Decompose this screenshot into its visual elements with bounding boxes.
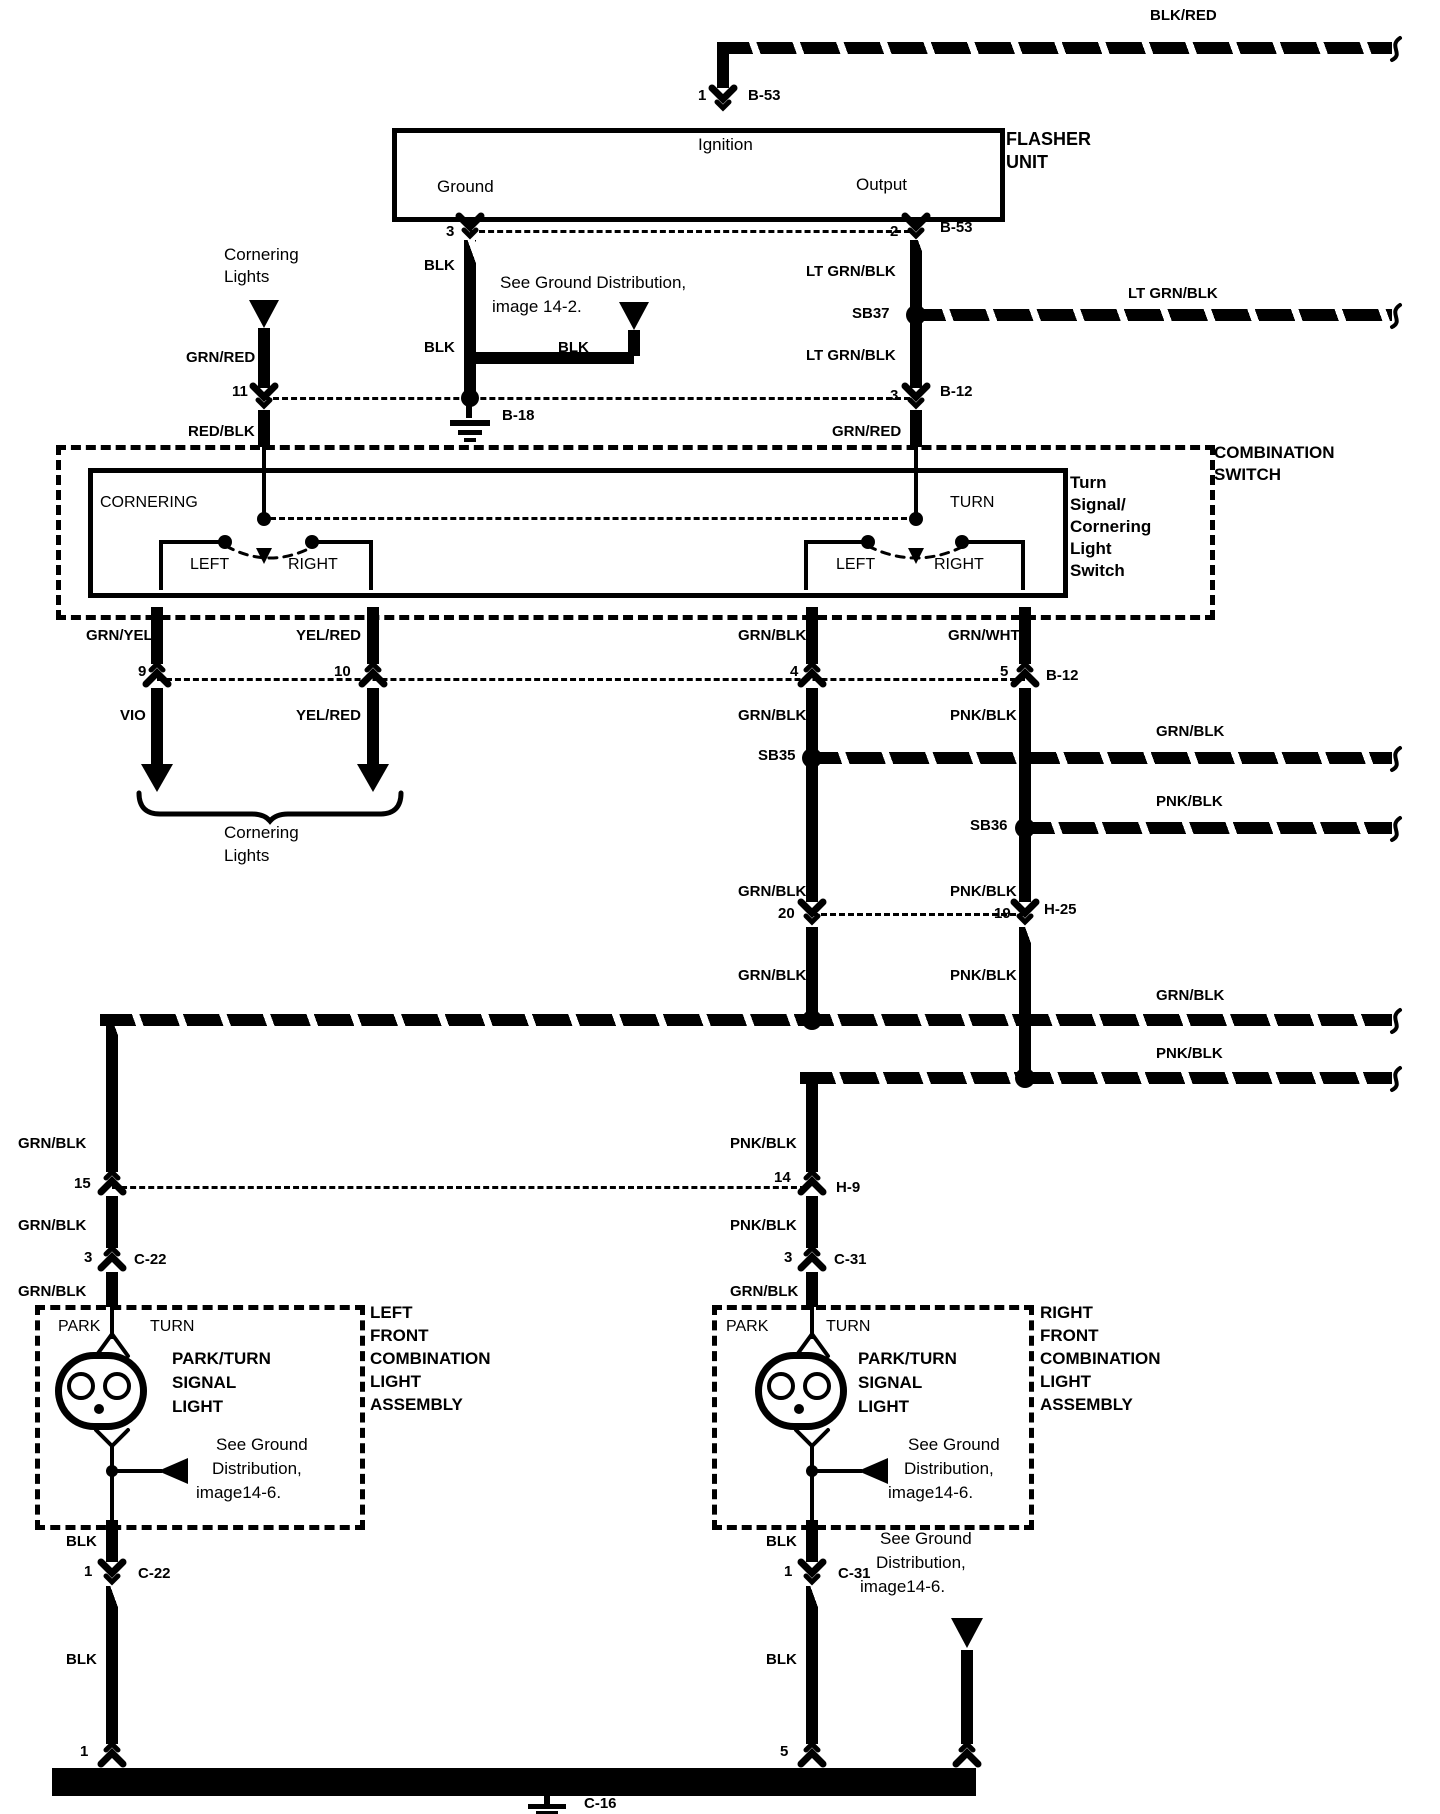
wire-label-pnkblk-6: PNK/BLK (730, 1136, 797, 1153)
cornering-lights-top-2: Lights (224, 268, 269, 287)
right-park-turn-bulb-filament-1 (767, 1372, 795, 1400)
c16-bar-1 (528, 1804, 566, 1809)
right-lamp-ground-dot (806, 1465, 818, 1477)
wire-label-grnblk-6: GRN/BLK (1156, 988, 1224, 1005)
ground-branch-stub (628, 330, 640, 356)
wire-label-grnwht: GRN/WHT (948, 628, 1020, 645)
cut-squiggle-grnblk1 (1388, 744, 1408, 774)
wire-grnwht-pin5-v (1019, 607, 1031, 664)
cut-squiggle-ltgrnblk (1388, 301, 1408, 331)
wire-grnred-right-v (910, 410, 922, 447)
note-ground-dist-4c: image14-6. (860, 1578, 945, 1597)
wire-blk-ground-v (464, 240, 476, 400)
wire-grnblk-long-h (100, 1014, 1392, 1026)
pin-5-bus: 5 (780, 1744, 788, 1761)
left-lamp-ground-dot (106, 1465, 118, 1477)
splice-grnblk (802, 1010, 822, 1030)
ground-bus-bar (52, 1768, 976, 1796)
link-h25-pins (812, 913, 1025, 916)
right-lamp-branch-line (812, 1469, 862, 1473)
left-park-turn-bulb-filament-1 (67, 1372, 95, 1400)
pin-1-bus: 1 (80, 1744, 88, 1761)
wire-pnkblk-right-b (806, 1196, 818, 1248)
cut-squiggle-blkred (1388, 34, 1408, 64)
link-b12-pins-bottom (157, 678, 1025, 681)
wire-label-redblk: RED/BLK (188, 424, 255, 441)
wire-blk-right-a (806, 1520, 818, 1562)
left-bulb-y-top (94, 1332, 130, 1358)
right-park-turn-bulb-filament-2 (803, 1372, 831, 1400)
wire-ltgrnblk-h (910, 309, 1392, 321)
pin-symbol-5-bus (797, 1740, 827, 1768)
wire-label-vio: VIO (120, 708, 146, 725)
wire-grnblk-sb35-h (806, 752, 1392, 764)
splice-sb35 (802, 748, 822, 768)
pin-symbol-19-h25 (1010, 898, 1040, 926)
connector-h25: H-25 (1044, 902, 1077, 919)
flasher-unit-label-2: UNIT (1006, 153, 1048, 173)
right-assembly-label-1: RIGHT (1040, 1304, 1093, 1323)
wire-pnkblk-v-b (1019, 836, 1031, 902)
left-assembly-label-5: ASSEMBLY (370, 1396, 463, 1415)
wire-pnkblk-sb36-h (1019, 822, 1392, 834)
cornering-wiper-arc (222, 540, 318, 574)
cornering-contact-left-line (159, 540, 163, 590)
combination-switch-label-1: COMBINATION (1214, 444, 1335, 463)
right-assembly-label-4: LIGHT (1040, 1373, 1091, 1392)
pin-symbol-4-b12 (797, 660, 827, 688)
wire-pnkblk-right-a (806, 1084, 818, 1172)
wire-grnblk-v-b (806, 766, 818, 902)
combination-switch-label-2: SWITCH (1214, 466, 1281, 485)
cornering-topseg-left (161, 540, 225, 544)
left-assembly-label-2: FRONT (370, 1327, 429, 1346)
left-lamp-ground-line (110, 1446, 114, 1522)
wire-label-grnred-2: GRN/RED (832, 424, 901, 441)
wire-b53-pin1-v (717, 48, 729, 88)
ground-b18-label: B-18 (502, 408, 535, 425)
cornering-lights-brace (136, 790, 404, 824)
link-b12-pins-top (264, 397, 910, 400)
note-ground-dist-1a: See Ground Distribution, (500, 274, 686, 293)
right-bulb-y-bottom (794, 1428, 830, 1448)
turn-topseg-left (806, 540, 868, 544)
wire-label-grnred-1: GRN/RED (186, 350, 255, 367)
link-switch-mechanical (270, 517, 916, 520)
wire-label-grnblk-3: GRN/BLK (1156, 724, 1224, 741)
pin-symbol-14-h9 (797, 1168, 827, 1196)
pin-20: 20 (778, 906, 795, 923)
pin-symbol-5-b12 (1010, 660, 1040, 688)
wire-label-blk-5: BLK (766, 1534, 797, 1551)
left-assembly-label-3: COMBINATION (370, 1350, 491, 1369)
cornering-lights-bottom-1: Cornering (224, 824, 299, 843)
wire-label-blk-7: BLK (766, 1652, 797, 1669)
turn-wiper-arc (864, 540, 968, 574)
right-assembly-label-3: COMBINATION (1040, 1350, 1161, 1369)
splice-sb37-label: SB37 (852, 306, 890, 323)
wire-grnblk-left-b (106, 1196, 118, 1248)
vio-arrowhead (141, 764, 173, 792)
wire-label-pnkblk-2: PNK/BLK (1156, 794, 1223, 811)
wire-grnyel-v (151, 607, 163, 664)
wire-label-grnblk-2: GRN/BLK (738, 708, 806, 725)
turn-contact-right-line (1021, 540, 1025, 590)
splice-pnkblk (1015, 1068, 1035, 1088)
wire-label-grnblk-1: GRN/BLK (738, 628, 806, 645)
pin-symbol-3-flasher (455, 212, 485, 240)
pin-symbol-1-b53 (708, 84, 738, 112)
wire-ground-drop-v (961, 1650, 973, 1744)
wire-blk-left-a (106, 1520, 118, 1562)
wire-label-blk-red: BLK/RED (1150, 8, 1217, 25)
wire-label-pnkblk-5: PNK/BLK (1156, 1046, 1223, 1063)
pin-3-c31: 3 (784, 1250, 792, 1267)
right-assembly-label-5: ASSEMBLY (1040, 1396, 1133, 1415)
left-park-turn-bulb-base-dot (94, 1404, 104, 1414)
connector-b53: B-53 (748, 88, 781, 105)
wire-label-grnyel: GRN/YEL (86, 628, 153, 645)
wire-pnkblk-v-c (1019, 927, 1031, 1080)
wire-label-ltgrnblk-3: LT GRN/BLK (806, 348, 896, 365)
connector-b53-2: B-53 (940, 220, 973, 237)
wire-blkred-h (717, 42, 1392, 54)
wire-label-yelred-2: YEL/RED (296, 708, 361, 725)
wire-label-grnblk-9: GRN/BLK (18, 1284, 86, 1301)
note-ground-dist-4b: Distribution, (876, 1554, 966, 1573)
wire-label-blk-2: BLK (424, 340, 455, 357)
wire-yelred-v (367, 607, 379, 664)
wire-label-yelred-1: YEL/RED (296, 628, 361, 645)
pin-symbol-11-b12 (249, 382, 279, 410)
wire-pnkblk-v-a (1019, 688, 1031, 824)
ground-c16-label: C-16 (584, 1796, 617, 1813)
wire-label-pnkblk-7: PNK/BLK (730, 1218, 797, 1235)
right-lamp-ground-ref-arrow (858, 1458, 888, 1484)
wire-label-pnkblk-1: PNK/BLK (950, 708, 1017, 725)
pin-15: 15 (74, 1176, 91, 1193)
pin-symbol-1-c22 (97, 1558, 127, 1586)
cornering-lights-arrow (249, 300, 279, 328)
connector-b12-2: B-12 (1046, 668, 1079, 685)
pin-1-c31: 1 (784, 1564, 792, 1581)
wire-label-blk-6: BLK (66, 1652, 97, 1669)
wire-grnblk-left-a (106, 1026, 118, 1172)
wiring-diagram: BLK/RED1B-53IgnitionGroundOutputFLASHERU… (0, 0, 1440, 1814)
wire-label-grnblk-10: GRN/BLK (730, 1284, 798, 1301)
left-lamp-branch-line (112, 1469, 162, 1473)
turn-contact-left-line (804, 540, 808, 590)
wire-grnblk-v-c (806, 927, 818, 1022)
left-assembly-label-1: LEFT (370, 1304, 413, 1323)
wire-label-pnkblk-4: PNK/BLK (950, 968, 1017, 985)
pin-symbol-3-b12 (901, 382, 931, 410)
pin-1: 1 (698, 88, 706, 105)
wire-grnblk-left-c (106, 1272, 118, 1307)
pin-symbol-20-h25 (797, 898, 827, 926)
note-ground-dist-1b: image 14-2. (492, 298, 582, 317)
wire-blk-left-b (106, 1586, 118, 1744)
yelred-arrowhead (357, 764, 389, 792)
ground-branch-h (470, 352, 634, 364)
cornering-topseg-right (312, 540, 371, 544)
connector-c22-2: C-22 (138, 1566, 171, 1583)
note-ground-dist-4a: See Ground (880, 1530, 972, 1549)
ground-drop-arrow (951, 1618, 983, 1648)
wire-label-blk-4: BLK (66, 1534, 97, 1551)
left-bulb-y-bottom (94, 1428, 130, 1448)
turn-topseg-right (960, 540, 1023, 544)
turn-cornering-switch-box (88, 468, 1068, 598)
cornering-contact-right-line (369, 540, 373, 590)
pin-symbol-1-c31 (797, 1558, 827, 1586)
pin-symbol-3-c31 (797, 1244, 827, 1272)
wire-vio-v (151, 688, 163, 766)
cornering-lights-bottom-2: Lights (224, 847, 269, 866)
cut-squiggle-grnblk2 (1388, 1006, 1408, 1036)
b18-bar-3 (464, 438, 476, 442)
b18-bar-1 (450, 420, 490, 426)
wire-grnblk-pin4-v (806, 607, 818, 664)
connector-c22-1: C-22 (134, 1252, 167, 1269)
pin-symbol-1-bus (97, 1740, 127, 1768)
splice-sb36 (1015, 818, 1035, 838)
pin-symbol-3-c22 (97, 1244, 127, 1272)
cornering-common-line (262, 447, 266, 521)
connector-b12-1: B-12 (940, 384, 973, 401)
pin-symbol-10-b12 (358, 660, 388, 688)
wire-label-ltgrnblk-1: LT GRN/BLK (806, 264, 896, 281)
flasher-unit-box (392, 128, 1005, 222)
splice-sb36-label: SB36 (970, 818, 1008, 835)
wire-yelred2-v (367, 688, 379, 766)
wire-label-grnblk-7: GRN/BLK (18, 1136, 86, 1153)
wire-label-pnkblk-3: PNK/BLK (950, 884, 1017, 901)
link-h9-pins (112, 1186, 806, 1189)
right-assembly-box (712, 1305, 1034, 1530)
wire-grnblk-right-c (806, 1272, 818, 1307)
pin-3-flasher: 3 (446, 224, 454, 241)
b18-bar-2 (458, 430, 482, 435)
pin-3-c22: 3 (84, 1250, 92, 1267)
flasher-unit-label-1: FLASHER (1006, 130, 1091, 150)
cornering-common-dot (257, 512, 271, 526)
splice-sb35-label: SB35 (758, 748, 796, 765)
right-lamp-ground-line (810, 1446, 814, 1522)
cut-squiggle-pnkblk2 (1388, 1064, 1408, 1094)
right-assembly-label-2: FRONT (1040, 1327, 1099, 1346)
ground-branch-arrow (619, 302, 649, 330)
pin-symbol-ground-bus (952, 1740, 982, 1768)
wire-pnkblk-long-h (800, 1072, 1392, 1084)
pin-symbol-9-b12 (142, 660, 172, 688)
wire-redblk-v (258, 410, 270, 447)
left-park-turn-bulb-filament-2 (103, 1372, 131, 1400)
pin-1-c22: 1 (84, 1564, 92, 1581)
wire-grnblk-v-a (806, 688, 818, 754)
connector-c31-1: C-31 (834, 1252, 867, 1269)
left-assembly-label-4: LIGHT (370, 1373, 421, 1392)
cut-squiggle-pnkblk1 (1388, 814, 1408, 844)
turn-common-line (914, 447, 918, 521)
right-park-turn-bulb-base-dot (794, 1404, 804, 1414)
pin-symbol-2-b53 (901, 212, 931, 240)
wire-label-grnblk-8: GRN/BLK (18, 1218, 86, 1235)
wire-label-ltgrnblk-2: LT GRN/BLK (1128, 286, 1218, 303)
pin-symbol-15-h9 (97, 1168, 127, 1196)
wire-grnred-v (258, 328, 270, 388)
link-b53-pins (470, 230, 910, 233)
splice-sb37 (906, 305, 926, 325)
pin-14: 14 (774, 1170, 791, 1187)
right-bulb-y-top (794, 1332, 830, 1358)
wire-blk-right-b (806, 1586, 818, 1744)
wire-label-grnblk-5: GRN/BLK (738, 968, 806, 985)
pin-11: 11 (232, 384, 248, 401)
connector-h9: H-9 (836, 1180, 860, 1197)
wire-label-blk-1: BLK (424, 258, 455, 275)
turn-common-dot (909, 512, 923, 526)
cornering-lights-top-1: Cornering (224, 246, 299, 265)
b18-ground-dot (461, 389, 479, 407)
left-lamp-ground-ref-arrow (158, 1458, 188, 1484)
